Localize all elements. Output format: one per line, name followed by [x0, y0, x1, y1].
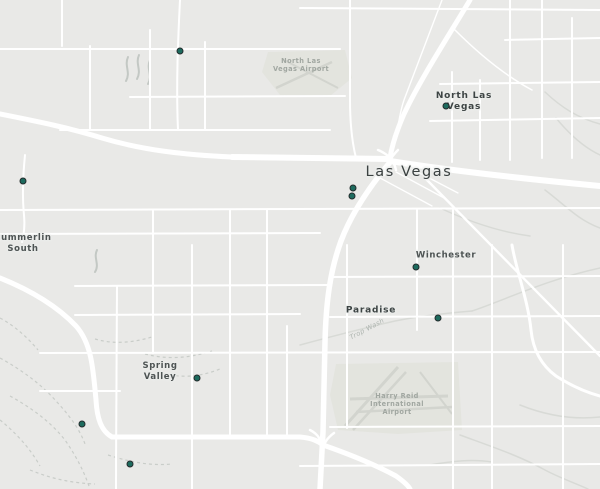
- map-marker-marker-6[interactable]: [413, 264, 420, 271]
- map-marker-marker-10[interactable]: [127, 461, 134, 468]
- map-marker-marker-4[interactable]: [350, 185, 357, 192]
- trail-paths: [0, 318, 222, 489]
- map-marker-marker-3[interactable]: [20, 178, 27, 185]
- map-marker-marker-5[interactable]: [349, 193, 356, 200]
- map-tiles: [0, 0, 600, 489]
- terrain-marks: [95, 55, 150, 272]
- map[interactable]: North LasVegas AirportNorth LasVegasLas …: [0, 0, 600, 489]
- airport-areas: [262, 50, 462, 434]
- map-marker-marker-1[interactable]: [177, 48, 184, 55]
- map-marker-marker-9[interactable]: [79, 421, 86, 428]
- map-marker-marker-8[interactable]: [194, 375, 201, 382]
- map-marker-marker-2[interactable]: [443, 103, 450, 110]
- map-marker-marker-7[interactable]: [435, 315, 442, 322]
